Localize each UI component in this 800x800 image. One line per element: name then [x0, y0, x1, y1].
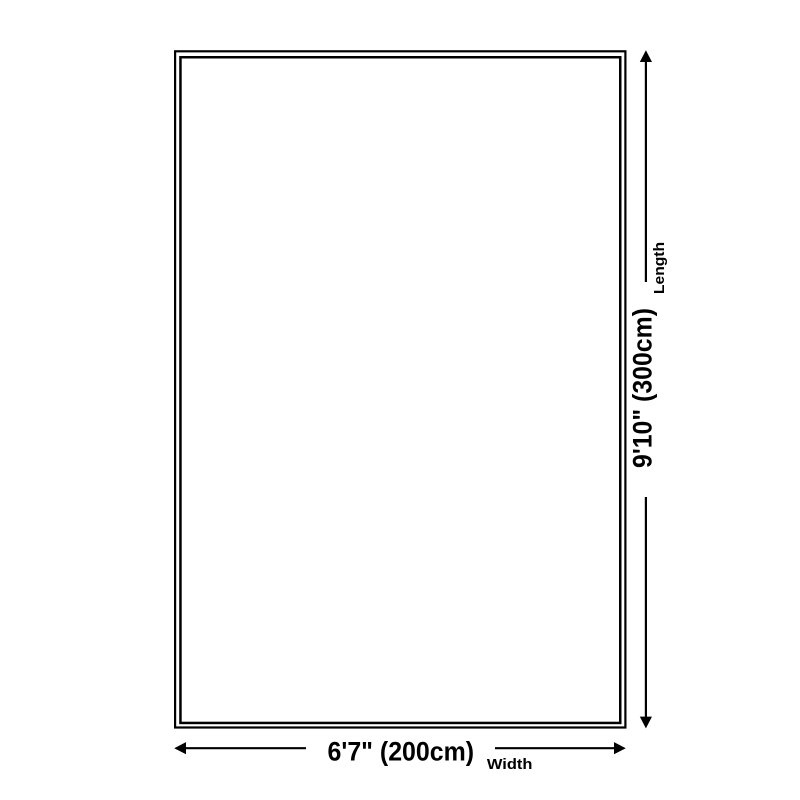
svg-text:Width: Width — [487, 756, 533, 773]
svg-text:6'7" (200cm): 6'7" (200cm) — [328, 737, 475, 767]
svg-text:Length: Length — [651, 242, 668, 294]
svg-text:9'10" (300cm): 9'10" (300cm) — [628, 308, 658, 468]
